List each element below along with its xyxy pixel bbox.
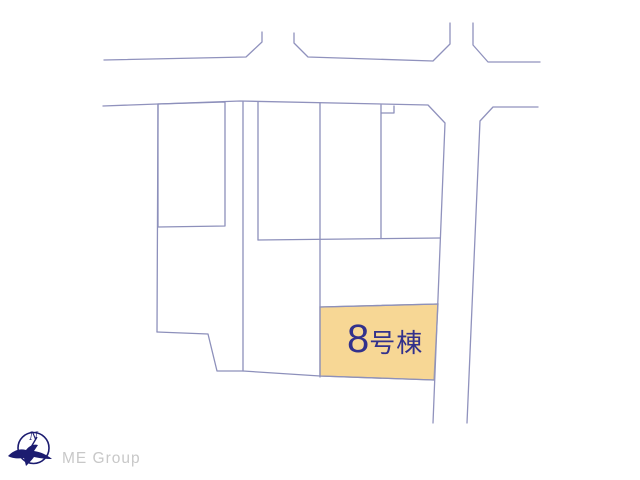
- me-group-logo-text: ME Group: [62, 450, 141, 468]
- road-edge-top-middle: [294, 23, 450, 61]
- road-edge-east-southroad-east: [467, 107, 538, 423]
- compass-north-icon: N: [8, 428, 52, 466]
- boundary-west-vertical: [157, 104, 158, 332]
- lot8-suffix: 号棟: [369, 328, 423, 358]
- lot8-label: 8号棟: [347, 317, 423, 362]
- boundary-horizontal-mid: [258, 238, 440, 240]
- lot8-number: 8: [347, 317, 369, 361]
- plot-map-page: N 8号棟 ME Group: [0, 0, 640, 480]
- parcel-rectangle-west: [158, 102, 225, 227]
- boundary-notch: [381, 106, 394, 113]
- plot-map-drawing: N: [0, 0, 640, 480]
- compass-n-label: N: [28, 428, 39, 443]
- road-edge-top-west: [104, 32, 262, 60]
- road-edge-top-east: [473, 23, 540, 62]
